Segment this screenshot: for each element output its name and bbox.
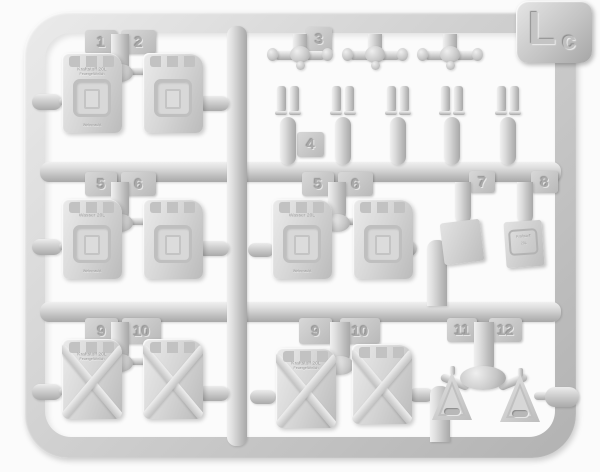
clamp-bar	[277, 86, 286, 112]
runner-riser	[390, 117, 406, 165]
can-handles	[359, 347, 405, 358]
can-embossed-text: Wehrmacht	[79, 123, 106, 127]
can-embossed-text: Feuergefährlich	[79, 72, 106, 76]
can-embossed-text: Kraftstoff 20L	[73, 351, 110, 357]
clamp-bar	[441, 86, 450, 112]
sprue-gate	[248, 243, 274, 257]
clamp-foot	[509, 111, 521, 115]
clamp-foot	[453, 111, 465, 115]
runner-divider	[227, 26, 247, 446]
clamp-foot	[385, 111, 397, 115]
jerry-can-plain	[143, 199, 203, 279]
clamp-foot	[344, 111, 356, 115]
clamp-bar	[454, 86, 463, 112]
clamp-bar	[345, 86, 354, 112]
can-handles	[360, 202, 406, 213]
can-embossed-text: Feuergefährlich	[79, 357, 106, 361]
can-embossed-text: Wasser 20L	[283, 212, 320, 218]
jerry-can-x-ribbed-labeled: Kraftstoff 20L Feuergefährlich	[276, 348, 336, 428]
runner-riser	[500, 117, 516, 165]
can-handles	[150, 202, 196, 213]
can-embossed-text: Wasser 20L	[73, 212, 110, 218]
embossed-plate-panel: Kraftstoff 20L	[503, 220, 544, 269]
clamp-bar	[400, 86, 409, 112]
flat-panel	[440, 219, 485, 266]
cap-assembly-knob	[446, 61, 455, 70]
jerry-can-x-ribbed	[352, 344, 412, 424]
can-embossed-text: Wehrmacht	[289, 269, 316, 273]
runner-riser	[517, 182, 533, 224]
runner-riser	[455, 182, 471, 224]
cap-assembly-knob	[296, 61, 305, 70]
runner-ball	[460, 366, 506, 390]
sprue-gate	[545, 387, 579, 407]
jerry-can-x-ribbed	[143, 339, 203, 419]
clamp-foot	[439, 111, 451, 115]
cap-assembly-end	[322, 48, 333, 61]
jerry-can-plain	[143, 53, 203, 133]
clamp-foot	[289, 111, 301, 115]
sprue-gate	[32, 239, 62, 255]
jerry-can-water-labeled: Wasser 20L Wehrmacht	[272, 199, 332, 279]
can-embossed-text: Feuergefährlich	[293, 366, 320, 370]
cap-assembly-end	[417, 48, 428, 61]
can-embossed-text: Wehrmacht	[79, 269, 106, 273]
clamp-foot	[275, 111, 287, 115]
cap-assembly-end	[472, 48, 483, 61]
clamp-foot	[399, 111, 411, 115]
part-number-tab: 4	[297, 132, 324, 157]
clamp-bar	[387, 86, 396, 112]
jerry-can-water-labeled: Wasser 20L Wehrmacht	[62, 199, 122, 279]
sprue-code-subletter: c	[562, 27, 576, 56]
runner-riser	[335, 117, 351, 165]
cap-assembly-knob	[371, 61, 380, 70]
bracket-slot	[444, 408, 460, 415]
sprue-code-tab: L c	[516, 1, 592, 63]
sprue-code-letter: L	[528, 1, 556, 55]
part-number-tab: 7	[469, 171, 495, 193]
cap-assembly-end	[397, 48, 408, 61]
clamp-bar	[332, 86, 341, 112]
runner-riser	[444, 117, 460, 165]
clamp-bar	[510, 86, 519, 112]
jerry-can-x-ribbed-labeled: Kraftstoff 20L Feuergefährlich	[62, 339, 122, 419]
jerry-can-plain	[353, 199, 413, 279]
sprue-gate	[250, 390, 276, 404]
bracket-slot	[512, 410, 528, 417]
part-number-tab: 8	[531, 171, 558, 193]
can-embossed-text: Kraftstoff 20L	[73, 66, 110, 72]
part-number-tab: 9	[299, 318, 332, 344]
cap-assembly-end	[342, 48, 353, 61]
sprue-gate	[32, 94, 62, 110]
can-handles	[150, 56, 196, 67]
runner-riser	[280, 117, 296, 165]
part-number-tab: 11	[447, 318, 477, 342]
can-handles	[150, 342, 196, 353]
can-embossed-text: Kraftstoff 20L	[287, 360, 324, 366]
clamp-foot	[495, 111, 507, 115]
cap-assembly-end	[267, 48, 278, 61]
jerry-can-fuel-labeled: Kraftstoff 20L Feuergefährlich Wehrmacht	[62, 53, 122, 133]
clamp-bar	[497, 86, 506, 112]
sprue-gate	[32, 384, 62, 400]
clamp-bar	[290, 86, 299, 112]
clamp-foot	[330, 111, 342, 115]
